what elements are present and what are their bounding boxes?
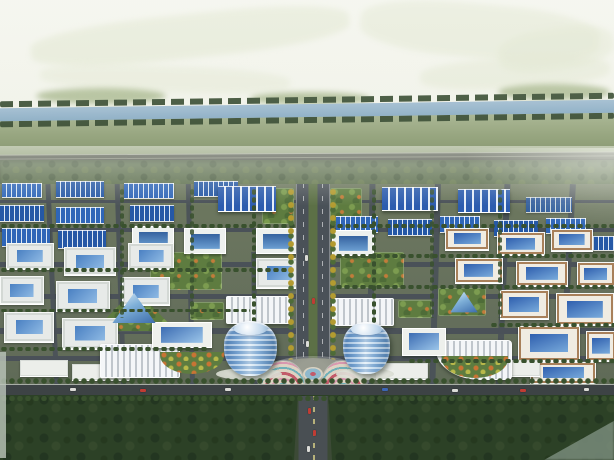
rendering-canvas — [0, 0, 614, 460]
car — [313, 430, 316, 436]
courtyard-building-tan — [551, 229, 593, 251]
car — [307, 446, 310, 452]
atmospheric-haze — [462, 148, 614, 232]
yellow-tree-row — [330, 188, 336, 360]
edge-path — [0, 352, 6, 458]
tree-row — [120, 188, 124, 318]
tree-row — [490, 323, 614, 327]
factory-building — [58, 230, 106, 248]
car — [70, 388, 76, 391]
factory-building — [56, 207, 104, 223]
courtyard-building — [6, 243, 54, 269]
courtyard-building-tan — [455, 258, 503, 283]
courtyard-building-tan — [577, 262, 614, 286]
car — [520, 389, 526, 392]
roadside-tree-row — [0, 378, 614, 384]
car — [306, 341, 309, 347]
courtyard-building-tan — [518, 326, 580, 361]
courtyard-building — [128, 243, 174, 269]
tree-row — [335, 254, 614, 258]
factory-building — [0, 205, 44, 221]
car — [140, 389, 146, 392]
low-building — [20, 360, 68, 376]
courtyard-building — [56, 281, 110, 311]
courtyard-building — [4, 312, 54, 342]
car — [308, 408, 311, 414]
tree-row — [190, 188, 194, 318]
atrium-building — [152, 322, 212, 348]
glass-tower — [343, 322, 390, 374]
tree-row — [0, 309, 250, 312]
tree-row — [335, 285, 614, 289]
courtyard-building-tan — [516, 261, 568, 286]
car — [452, 389, 458, 392]
courtyard-building — [0, 276, 44, 304]
atrium-building — [402, 328, 446, 356]
car — [584, 388, 589, 391]
aerial-scene — [0, 0, 614, 460]
courtyard-building-tan — [556, 293, 614, 325]
car — [305, 255, 308, 261]
courtyard-building-tan — [586, 331, 614, 361]
factory-building — [130, 205, 174, 221]
car — [225, 388, 231, 391]
car — [382, 388, 388, 391]
tree-row — [0, 268, 292, 272]
garden-plot — [398, 300, 432, 318]
yellow-tree-row — [288, 188, 294, 360]
courtyard-building-tan — [500, 290, 549, 319]
tree-row — [408, 359, 614, 363]
roadside-tree-row — [0, 396, 614, 401]
factory-building — [332, 230, 374, 256]
glass-tower — [224, 321, 277, 376]
atmospheric-haze — [0, 0, 614, 134]
tree-row — [0, 347, 208, 351]
access-road — [294, 396, 332, 460]
car — [312, 298, 315, 304]
tree-row — [430, 188, 434, 318]
courtyard-building-tan — [497, 232, 545, 255]
